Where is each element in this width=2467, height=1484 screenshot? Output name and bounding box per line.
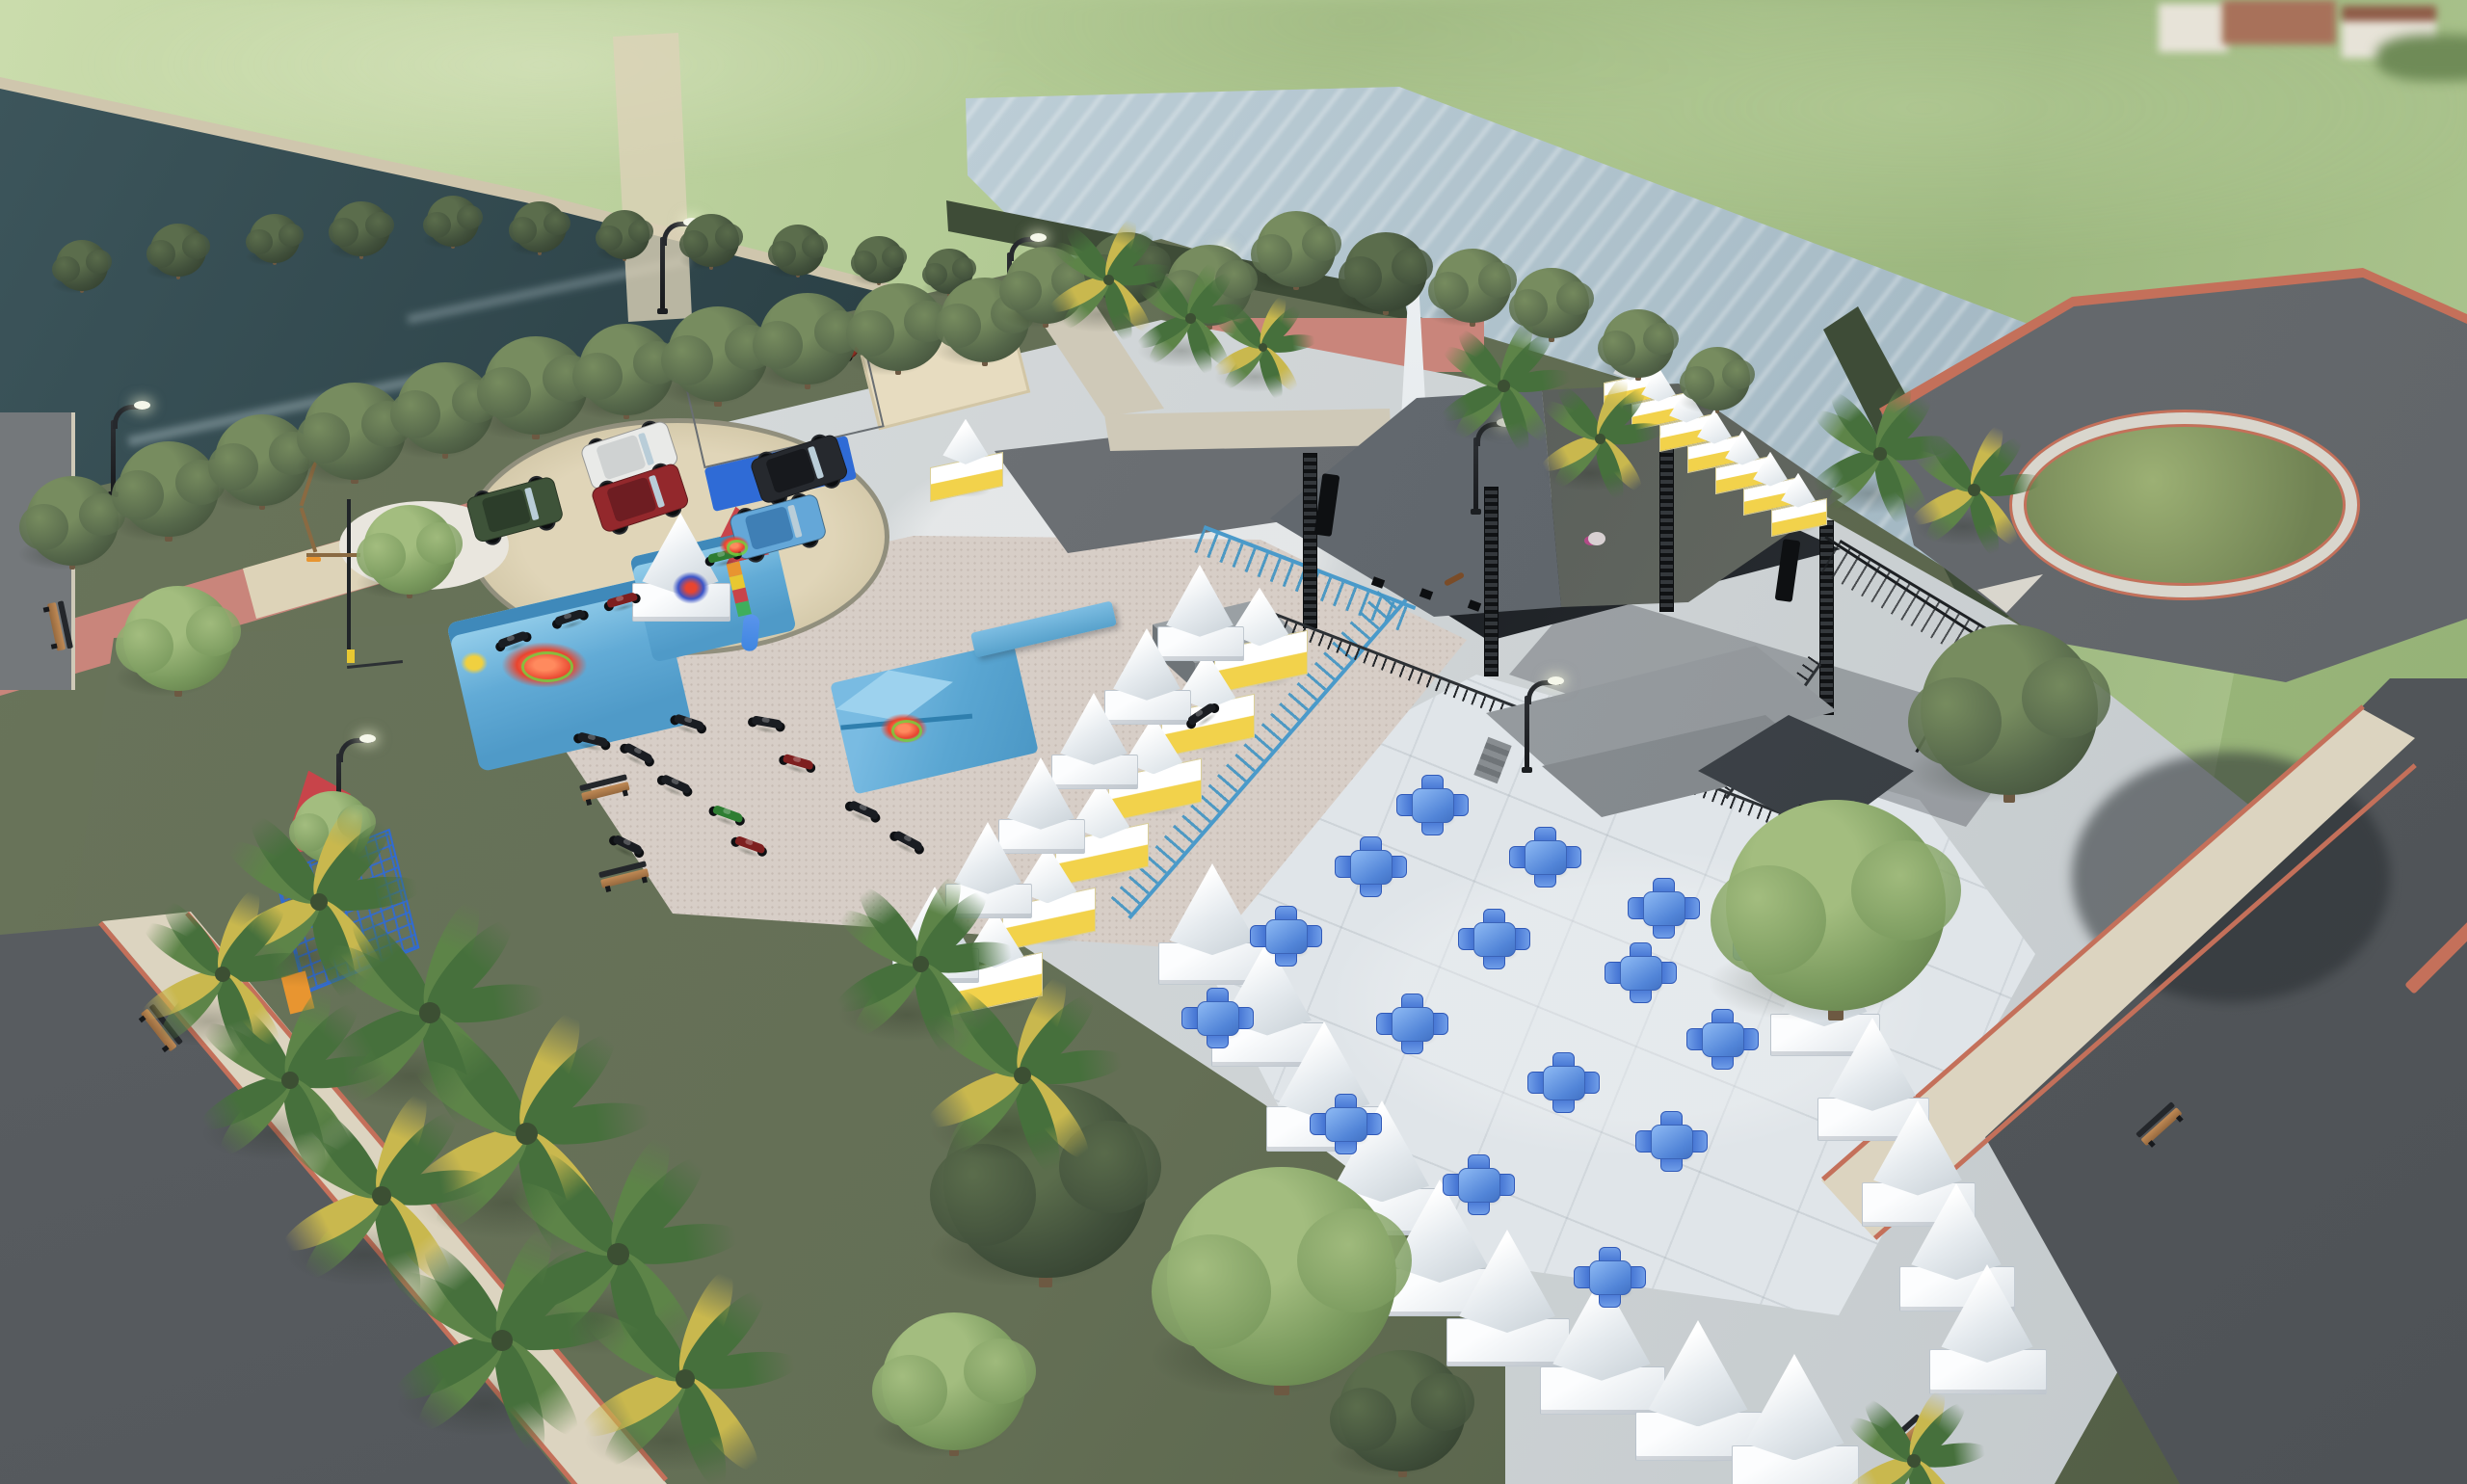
tree-canopy: [86, 250, 112, 274]
tree-canopy: [1556, 281, 1594, 315]
tree: [423, 194, 483, 253]
palm-crown: [1907, 1454, 1921, 1468]
palm-tree: [1537, 376, 1662, 501]
tree-canopy: [1411, 1373, 1474, 1431]
tree-canopy: [846, 310, 894, 357]
tree-canopy: [628, 220, 653, 243]
tree-canopy: [1297, 1208, 1412, 1312]
palm-tree: [920, 973, 1123, 1176]
tree: [509, 199, 570, 260]
tree: [1711, 790, 1961, 1041]
tree: [1908, 617, 2110, 819]
tree: [329, 199, 394, 264]
tree-canopy: [1598, 331, 1635, 366]
tree-canopy: [1330, 1388, 1396, 1451]
tree-canopy: [423, 212, 451, 238]
tree-canopy: [882, 246, 907, 268]
tree-canopy: [1711, 865, 1826, 975]
tree-canopy: [2022, 657, 2110, 738]
tree-canopy: [1851, 840, 1961, 941]
palm-crown: [491, 1330, 513, 1351]
tree-canopy: [1251, 234, 1292, 274]
tree-canopy: [146, 240, 175, 268]
tree-canopy: [1392, 248, 1433, 285]
tree: [1680, 344, 1755, 419]
palm-crown: [372, 1186, 391, 1206]
tree-canopy: [572, 353, 623, 400]
tree-canopy: [802, 234, 828, 258]
tree-canopy: [19, 504, 68, 550]
tree-canopy: [186, 606, 241, 656]
tree-canopy: [851, 251, 877, 276]
tree-canopy: [208, 443, 258, 490]
tree-canopy: [935, 304, 981, 348]
tree-canopy: [246, 229, 273, 254]
tree-canopy: [964, 1338, 1036, 1404]
tree-canopy: [297, 412, 350, 464]
tree-canopy: [1339, 256, 1382, 298]
tree-canopy: [52, 256, 80, 282]
tree: [596, 208, 653, 266]
park-render: [0, 0, 2467, 1484]
tree: [52, 238, 112, 298]
tree-canopy: [1428, 272, 1469, 310]
palm-tree: [135, 887, 308, 1060]
tree-canopy: [477, 367, 531, 419]
tree: [1251, 207, 1341, 298]
tree: [872, 1306, 1036, 1470]
tree: [768, 223, 828, 282]
tree: [146, 221, 210, 284]
tree: [357, 501, 463, 607]
tree-canopy: [279, 224, 304, 247]
tree-canopy: [999, 271, 1042, 311]
tree-canopy: [1680, 366, 1714, 399]
tree-canopy: [596, 225, 623, 251]
tree-canopy: [116, 619, 173, 674]
palm-tree: [1841, 1388, 1985, 1484]
palm-tree: [385, 1224, 617, 1455]
palm-crown: [1968, 484, 1979, 495]
layer-flora: [0, 0, 2467, 1484]
tree-canopy: [357, 533, 406, 579]
palm-crown: [215, 967, 230, 982]
tree: [116, 581, 241, 706]
tree-canopy: [715, 224, 743, 249]
tree-canopy: [1302, 225, 1341, 262]
palm-crown: [1185, 313, 1196, 324]
palm-tree: [1907, 423, 2040, 556]
tree-canopy: [1722, 359, 1755, 389]
tree-canopy: [679, 230, 708, 258]
tree-canopy: [457, 205, 483, 229]
palm-tree: [1209, 294, 1315, 400]
palm-crown: [1873, 447, 1887, 461]
tree: [1330, 1344, 1474, 1484]
tree-canopy: [365, 212, 394, 238]
tree-canopy: [1908, 677, 2002, 766]
tree-canopy: [544, 211, 570, 236]
tree-canopy: [1152, 1234, 1271, 1349]
tree-canopy: [182, 233, 210, 258]
tree: [679, 211, 743, 275]
tree: [246, 212, 304, 270]
palm-crown: [281, 1072, 299, 1089]
tree-canopy: [1643, 323, 1679, 356]
tree-canopy: [872, 1355, 947, 1427]
palm-crown: [1498, 380, 1510, 392]
tree-canopy: [416, 522, 463, 565]
tree-canopy: [768, 241, 796, 267]
